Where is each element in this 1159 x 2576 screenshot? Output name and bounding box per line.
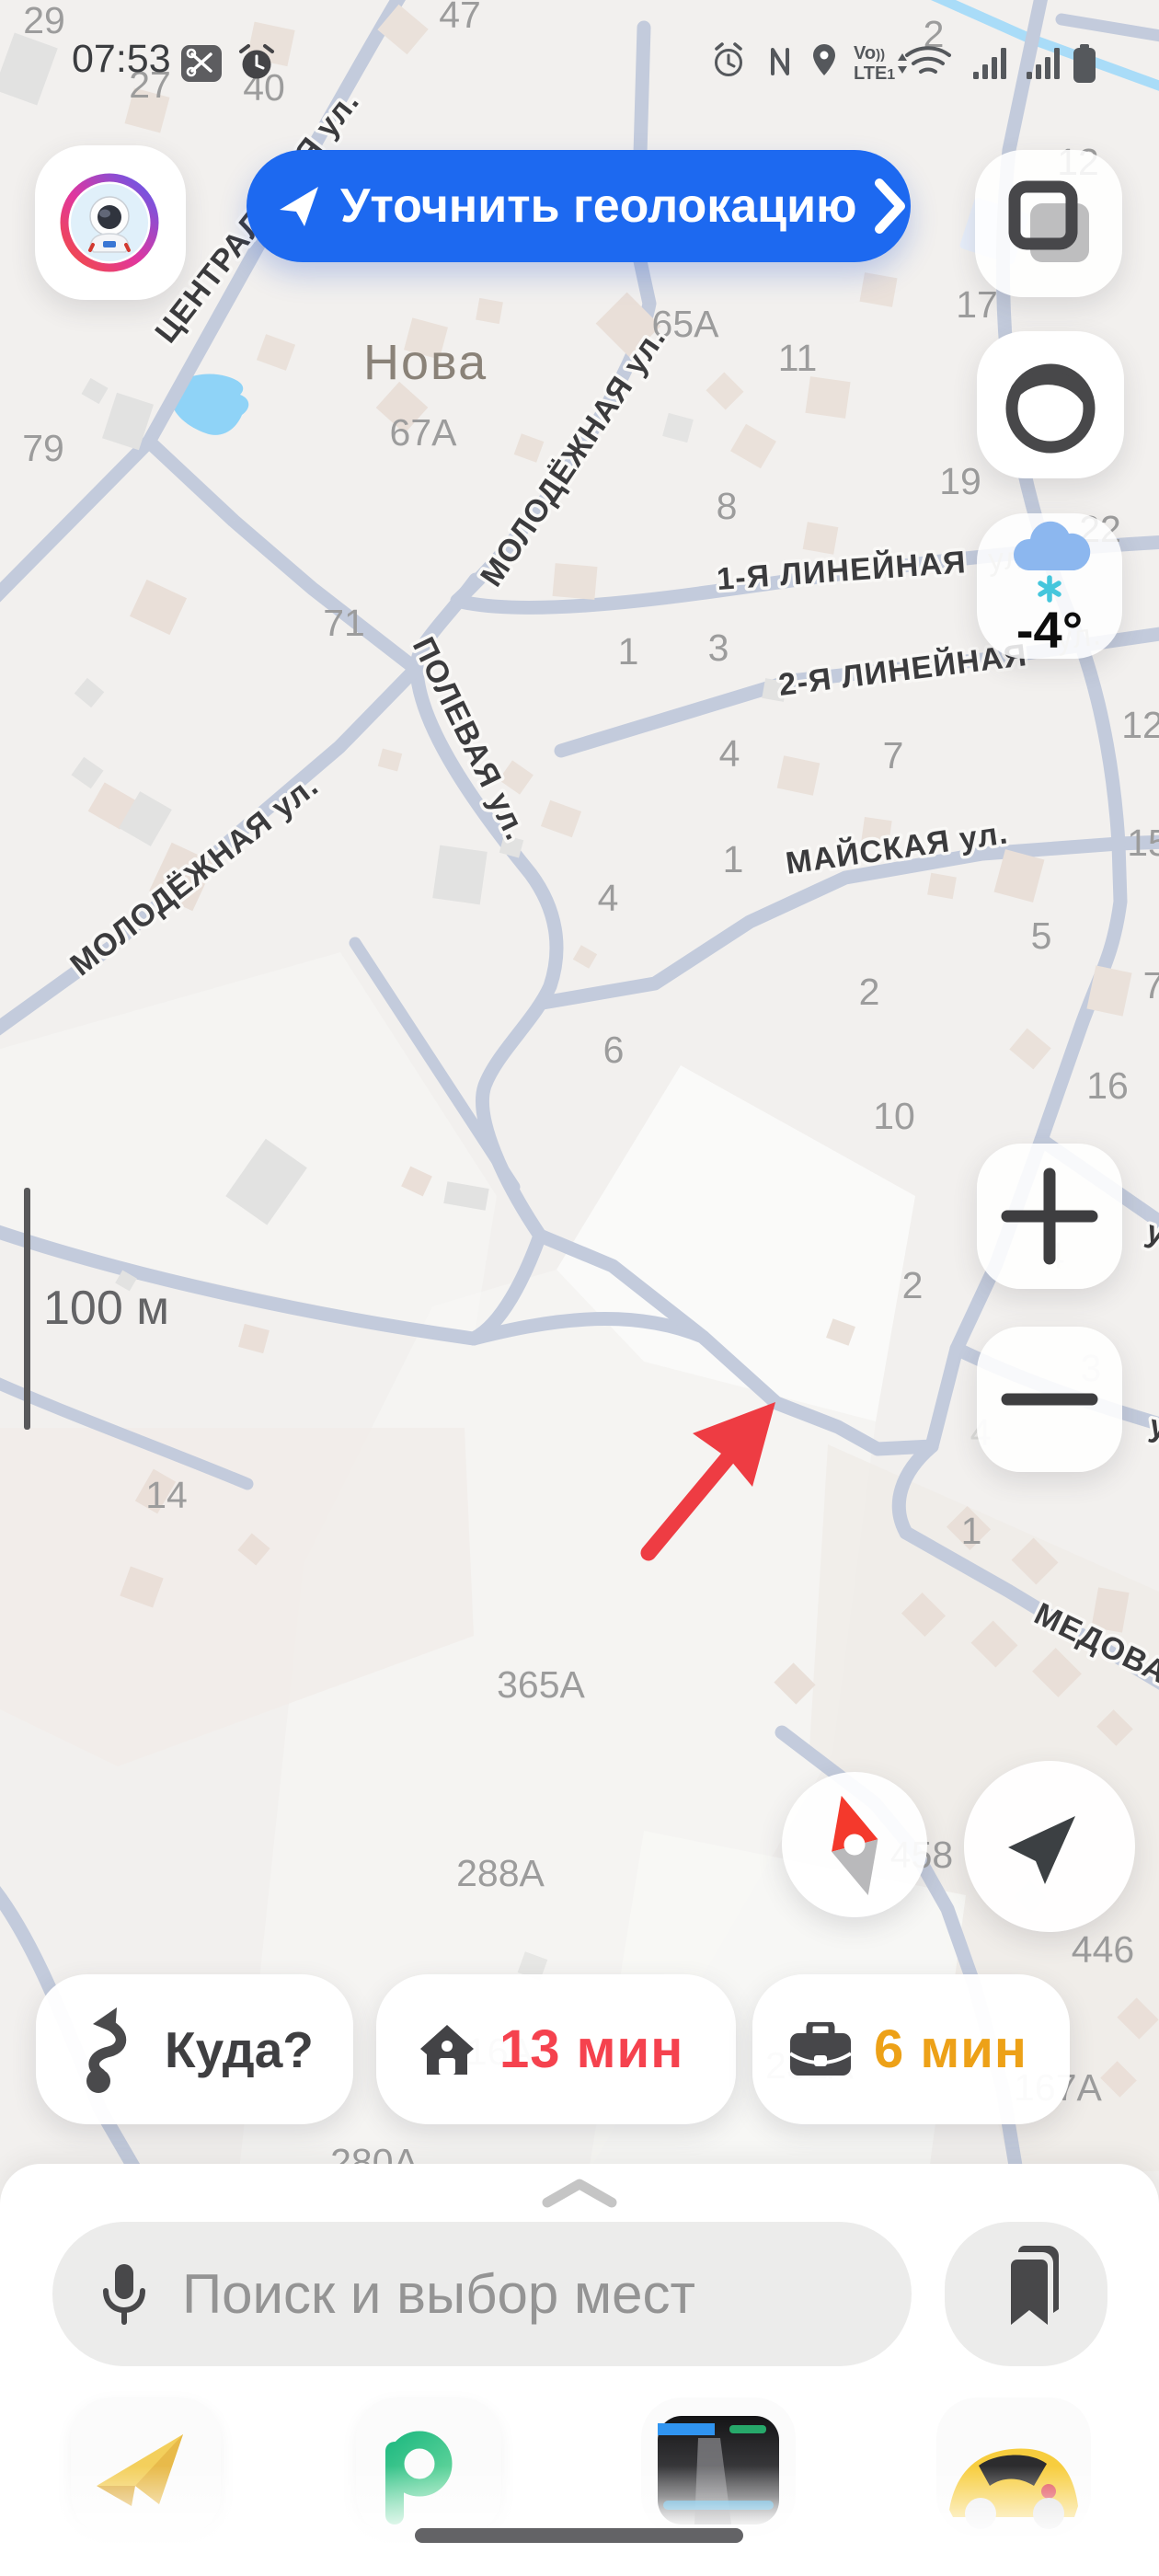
- svg-text:10: 10: [873, 1095, 915, 1137]
- svg-text:1: 1: [723, 838, 744, 880]
- svg-text:3: 3: [708, 627, 729, 669]
- svg-text:288А: 288А: [456, 1852, 545, 1894]
- svg-text:4: 4: [598, 877, 619, 919]
- svg-text:79: 79: [22, 427, 64, 469]
- svg-text:5: 5: [1031, 914, 1052, 957]
- svg-text:2: 2: [902, 1264, 924, 1306]
- svg-text:-4°: -4°: [1016, 601, 1083, 659]
- svg-text:6: 6: [603, 1029, 625, 1071]
- svg-text:Vo)): Vo)): [854, 43, 885, 63]
- svg-text:2: 2: [859, 971, 880, 1013]
- svg-text:16: 16: [1086, 1064, 1129, 1107]
- svg-text:МОЛОДЁЖНАЯ ул.: МОЛОДЁЖНАЯ ул.: [474, 321, 672, 592]
- svg-text:71: 71: [323, 602, 365, 644]
- svg-text:15: 15: [1127, 822, 1159, 864]
- svg-text:4: 4: [719, 732, 740, 775]
- svg-text:1: 1: [618, 630, 639, 673]
- svg-text:446: 446: [1072, 1928, 1134, 1971]
- svg-text:1: 1: [961, 1510, 982, 1552]
- svg-text:ПОЛЕВАЯ ул.: ПОЛЕВАЯ ул.: [406, 632, 534, 846]
- svg-text:12: 12: [1121, 704, 1159, 746]
- svg-text:8: 8: [717, 485, 738, 527]
- svg-text:14: 14: [145, 1474, 188, 1516]
- svg-text:7: 7: [883, 734, 904, 776]
- svg-text:LTE1: LTE1: [854, 63, 895, 84]
- svg-text:1-Я ЛИНЕЙНАЯ: 1-Я ЛИНЕЙНАЯ: [716, 544, 968, 597]
- svg-text:ул.: ул.: [1142, 1213, 1159, 1262]
- svg-text:Нова: Нова: [363, 335, 488, 390]
- svg-text:47: 47: [439, 0, 481, 36]
- svg-text:19: 19: [939, 460, 981, 502]
- svg-text:11: 11: [778, 337, 818, 379]
- svg-text:7: 7: [1143, 964, 1159, 1006]
- svg-text:67А: 67А: [390, 411, 458, 454]
- svg-text:29: 29: [23, 0, 65, 41]
- svg-text:365А: 365А: [497, 1663, 585, 1706]
